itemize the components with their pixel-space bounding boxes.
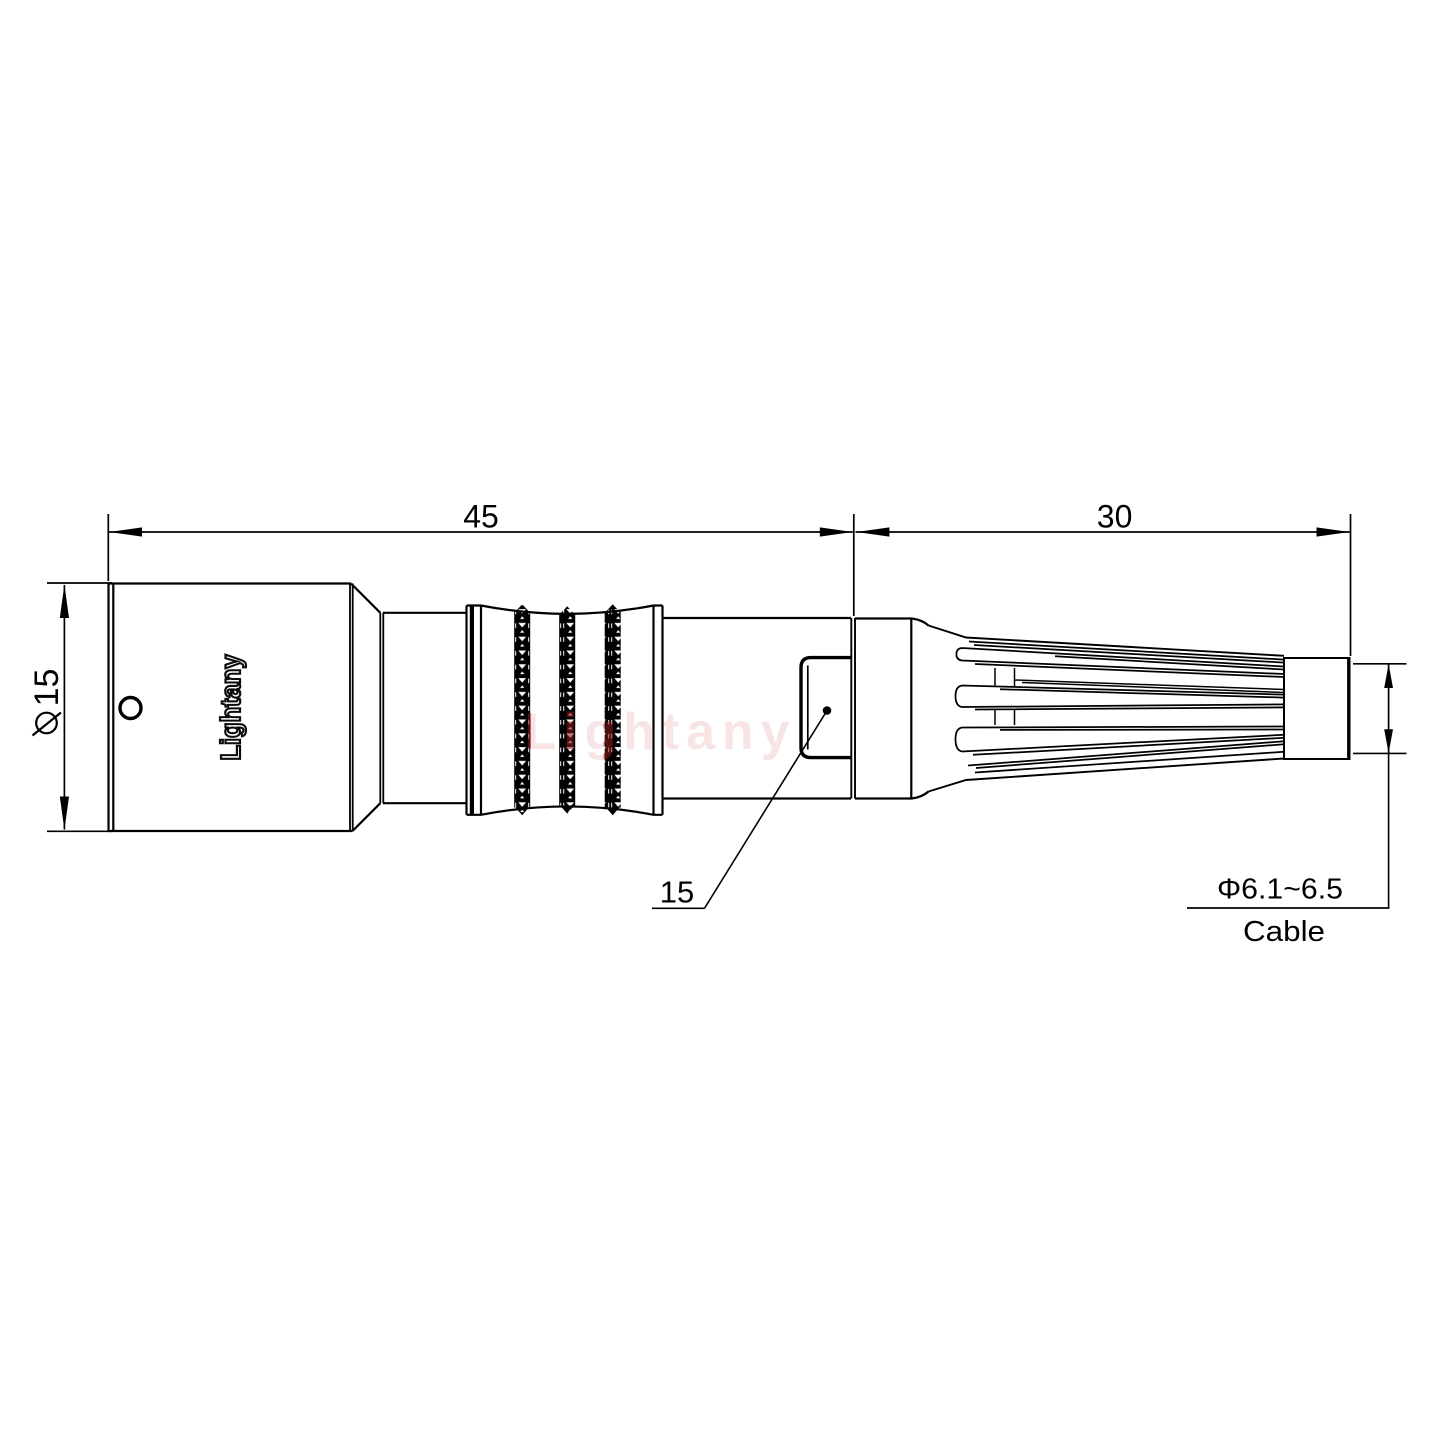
- svg-text:15: 15: [28, 669, 66, 707]
- svg-text:30: 30: [1097, 499, 1133, 535]
- svg-text:Cable: Cable: [1243, 916, 1325, 948]
- svg-text:Lightany: Lightany: [215, 654, 246, 761]
- svg-text:15: 15: [660, 875, 694, 910]
- svg-text:45: 45: [463, 499, 499, 535]
- svg-text:Φ6.1~6.5: Φ6.1~6.5: [1217, 874, 1343, 906]
